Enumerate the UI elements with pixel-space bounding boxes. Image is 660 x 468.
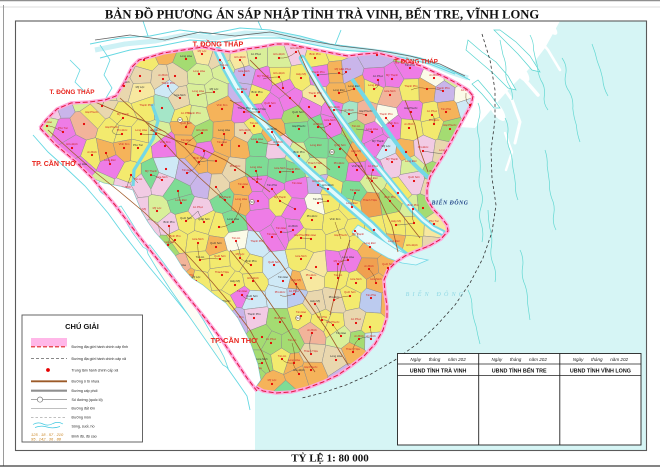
svg-text:Thạnh Phú: Thạnh Phú [250,239,264,243]
svg-text:An Bình: An Bình [158,73,168,77]
svg-text:Vinh Kim: Vinh Kim [119,142,130,146]
svg-text:Đường đất lớn: Đường đất lớn [72,407,96,411]
svg-text:An Phục: An Phục [193,205,204,209]
svg-text:Hữu Định: Hữu Định [66,142,78,146]
svg-text:Hòa Ninh: Hòa Ninh [192,237,204,241]
svg-text:Long Đức: Long Đức [388,239,400,243]
svg-text:An Bình: An Bình [344,108,354,112]
svg-text:Phú Đức: Phú Đức [151,128,162,132]
svg-text:Tân An: Tân An [334,273,343,277]
svg-text:Mỹ Thạnh: Mỹ Thạnh [145,169,157,173]
svg-text:95 . 142 . 36 . 88: 95 . 142 . 36 . 88 [31,437,62,442]
svg-text:Quới Sơn: Quới Sơn [210,241,222,245]
svg-text:Long Hòa: Long Hòa [227,217,239,221]
svg-text:Mỹ Thạnh: Mỹ Thạnh [257,74,269,78]
svg-text:Bình Phú: Bình Phú [251,90,263,94]
svg-text:Mỹ Lộc: Mỹ Lộc [236,252,245,256]
svg-text:Hòa Ninh: Hòa Ninh [370,277,382,281]
svg-text:Long Hòa: Long Hòa [251,137,263,141]
svg-text:Long Đức: Long Đức [348,84,360,88]
svg-text:Quới Sơn: Quới Sơn [214,254,226,258]
svg-text:Thành Triệu: Thành Triệu [215,270,230,274]
svg-text:An Phục: An Phục [266,337,277,341]
svg-text:Đường cấp phối: Đường cấp phối [72,389,98,393]
svg-text:Long Hòa: Long Hòa [366,127,378,131]
svg-text:Mỹ Thạnh: Mỹ Thạnh [117,112,129,116]
svg-text:Thành Triệu: Thành Triệu [346,347,361,351]
svg-text:An Bình: An Bình [307,328,317,332]
svg-text:Thạnh Phú: Thạnh Phú [308,91,322,95]
svg-text:Hiệp Mỹ: Hiệp Mỹ [310,299,321,303]
svg-text:An Bình: An Bình [267,127,277,131]
svg-text:Mỹ Lộc: Mỹ Lộc [334,259,343,263]
svg-text:An Phục: An Phục [289,289,300,293]
svg-text:Long Đức: Long Đức [104,158,116,162]
svg-text:Hữu Định: Hữu Định [273,71,285,75]
svg-text:Mỹ Thạnh: Mỹ Thạnh [352,232,364,236]
svg-text:An Phục: An Phục [373,74,384,78]
svg-text:Đại Phước: Đại Phước [405,106,419,110]
svg-text:Thạnh Phú: Thạnh Phú [286,167,300,171]
svg-text:Vinh Kim: Vinh Kim [330,217,341,221]
svg-text:Thạnh Phú: Thạnh Phú [379,112,393,116]
svg-text:Thạnh Phú: Thạnh Phú [247,312,261,316]
svg-text:An Phục: An Phục [351,317,362,321]
svg-text:Vinh Kim: Vinh Kim [217,103,228,107]
svg-text:Tân Phú: Tân Phú [441,107,452,111]
svg-text:An Bình: An Bình [354,334,364,338]
svg-text:Quới Sơn: Quới Sơn [246,294,258,298]
svg-text:Quới Sơn: Quới Sơn [334,143,346,147]
svg-text:An Phục: An Phục [341,67,352,71]
svg-text:Tân Phú: Tân Phú [313,197,324,201]
svg-text:An Bình: An Bình [288,224,298,228]
svg-text:Đại Phước: Đại Phước [360,109,374,113]
svg-text:Bình Phú: Bình Phú [245,259,257,263]
svg-text:Hiệp Mỹ: Hiệp Mỹ [391,219,402,223]
svg-text:Tân An: Tân An [220,63,229,67]
svg-text:Sông, suối, hồ: Sông, suối, hồ [72,425,95,429]
svg-text:An Bình: An Bình [273,140,283,144]
svg-text:Tân An: Tân An [196,255,205,259]
svg-text:Bình Phú: Bình Phú [274,316,286,320]
svg-text:Tân An: Tân An [250,121,259,125]
svg-text:Hữu Định: Hữu Định [196,128,208,132]
svg-text:Hòa Ninh: Hòa Ninh [256,357,268,361]
svg-text:Hòa Ninh: Hòa Ninh [174,93,186,97]
svg-text:Long Đức: Long Đức [364,241,376,245]
svg-text:Thạnh Phú: Thạnh Phú [311,70,325,74]
svg-text:Đường địa giới hành chính cấp: Đường địa giới hành chính cấp tỉnh [72,345,128,349]
svg-text:Thành Triệu: Thành Triệu [304,349,319,353]
svg-text:Mỹ Thạnh: Mỹ Thạnh [386,73,398,77]
svg-text:Hữu Định: Hữu Định [247,276,259,280]
svg-text:Đại Phước: Đại Phước [86,110,100,114]
svg-text:Mỹ Thạnh: Mỹ Thạnh [386,157,398,161]
svg-text:Phú Túc: Phú Túc [133,143,144,147]
svg-text:Phú Đức: Phú Đức [307,214,318,218]
svg-text:Long Đức: Long Đức [366,176,378,180]
svg-text:T. ĐỒNG THÁP: T. ĐỒNG THÁP [394,59,438,66]
svg-text:Long Đức: Long Đức [405,159,417,163]
svg-text:An Phục: An Phục [427,109,438,113]
svg-text:Mỹ Lộc: Mỹ Lộc [192,275,201,279]
svg-text:Tân Phú: Tân Phú [317,315,328,319]
svg-text:Tân Hào: Tân Hào [292,181,303,185]
svg-text:Hòa Ninh: Hòa Ninh [350,277,362,281]
svg-text:Mỹ Thạnh: Mỹ Thạnh [274,195,286,199]
svg-text:Tân Hào: Tân Hào [238,182,249,186]
svg-text:Tân Phú: Tân Phú [267,183,278,187]
svg-text:Vinh Kim: Vinh Kim [352,164,363,168]
svg-text:UBND TỈNH BẾN TRE: UBND TỈNH BẾN TRE [492,367,547,374]
svg-text:Hòa Ninh: Hòa Ninh [295,254,307,258]
svg-text:Thạnh Phú: Thạnh Phú [187,111,201,115]
svg-text:Phú Đức: Phú Đức [275,290,286,294]
svg-text:Hiệp Mỹ: Hiệp Mỹ [291,278,302,282]
svg-text:Long Đức: Long Đức [346,201,358,205]
svg-text:Bình Phú: Bình Phú [407,203,419,207]
svg-text:Tân An: Tân An [352,124,361,128]
svg-text:Bình độ, độ cao: Bình độ, độ cao [72,435,97,439]
svg-text:Phú Túc: Phú Túc [58,126,69,130]
svg-text:Long Hòa: Long Hòa [330,354,342,358]
svg-text:Hiệp Mỹ: Hiệp Mỹ [351,149,362,153]
svg-text:An Phục: An Phục [251,52,262,56]
svg-text:Phú Túc: Phú Túc [429,219,440,223]
svg-text:Phú Đức: Phú Đức [306,273,317,277]
svg-text:Hữu Định: Hữu Định [328,105,340,109]
svg-text:Long Hòa: Long Hòa [250,165,262,169]
svg-text:Thạnh Phú: Thạnh Phú [237,106,251,110]
svg-text:Long Đức: Long Đức [310,143,322,147]
svg-text:Bình Phú: Bình Phú [293,150,305,154]
svg-text:Phú Đức: Phú Đức [230,164,241,168]
svg-text:An Bình: An Bình [87,150,97,154]
svg-text:Hữu Định: Hữu Định [273,52,285,56]
svg-text:Long Đức: Long Đức [333,88,345,92]
svg-text:An Bình: An Bình [313,122,323,126]
svg-text:Mỹ Lộc: Mỹ Lộc [198,49,207,53]
svg-text:Thành Triệu: Thành Triệu [363,198,378,202]
svg-text:Đường mòn: Đường mòn [72,416,91,420]
svg-text:Phú Đức: Phú Đức [418,145,429,149]
svg-text:Mỹ Lộc: Mỹ Lộc [136,85,145,89]
svg-text:UBND TỈNH TRÀ VINH: UBND TỈNH TRÀ VINH [410,367,467,374]
svg-text:An Phục: An Phục [368,164,379,168]
svg-text:Tân Hào: Tân Hào [276,226,287,230]
svg-text:BIỂN ĐÔNG: BIỂN ĐÔNG [406,290,467,298]
svg-text:Tân Hào: Tân Hào [182,168,193,172]
svg-text:Đại Phước: Đại Phước [293,124,307,128]
svg-text:Phú Đức: Phú Đức [334,161,345,165]
svg-text:Tân An: Tân An [278,354,287,358]
svg-text:Hiệp Mỹ: Hiệp Mỹ [296,72,307,76]
svg-text:Tân Phú: Tân Phú [366,293,377,297]
svg-text:Hòa Ninh: Hòa Ninh [384,89,396,93]
svg-text:Mỹ Lộc: Mỹ Lộc [210,87,219,91]
svg-text:Hữu Định: Hữu Định [234,55,246,59]
svg-text:Tân An: Tân An [232,236,241,240]
svg-text:60: 60 [330,150,334,154]
svg-text:TP. CẦN THƠ: TP. CẦN THƠ [211,335,259,345]
svg-text:Phú Đức: Phú Đức [117,128,128,132]
svg-text:53: 53 [250,200,254,204]
svg-text:Long Hòa: Long Hòa [180,54,192,58]
svg-text:Số đường (quốc lộ): Số đường (quốc lộ) [72,398,103,402]
svg-text:Ngày tháng năm 202: Ngày tháng năm 202 [410,357,466,362]
svg-text:Long Hòa: Long Hòa [218,128,230,132]
svg-text:CHÚ GIẢI: CHÚ GIẢI [65,322,99,331]
svg-text:Hữu Định: Hữu Định [239,128,251,132]
svg-text:Thành Triệu: Thành Triệu [308,161,323,165]
svg-text:Hòa Ninh: Hòa Ninh [238,69,250,73]
svg-text:Hiệp Mỹ: Hiệp Mỹ [230,279,241,283]
svg-text:Tân Hào: Tân Hào [306,233,317,237]
svg-text:Thạnh Phú: Thạnh Phú [404,84,418,88]
svg-text:Vinh Kim: Vinh Kim [160,140,171,144]
svg-text:An Bình: An Bình [366,334,376,338]
svg-text:Quới Sơn: Quới Sơn [408,175,420,179]
svg-text:Tân An: Tân An [134,177,143,181]
svg-text:Bình Phú: Bình Phú [193,156,205,160]
svg-text:Đại Phước: Đại Phước [327,320,341,324]
svg-text:Quới Sơn: Quới Sơn [268,260,280,264]
svg-text:Long Hòa: Long Hòa [135,128,147,132]
svg-text:An Phục: An Phục [252,177,263,181]
svg-text:Long Hòa: Long Hòa [193,69,205,73]
svg-text:Thạnh Phú: Thạnh Phú [139,103,153,107]
svg-text:Hòa Ninh: Hòa Ninh [156,175,168,179]
svg-text:Tân Hào: Tân Hào [237,289,248,293]
svg-text:Quới Sơn: Quới Sơn [344,290,356,294]
svg-text:An Bình: An Bình [404,122,414,126]
svg-text:Mỹ Lộc: Mỹ Lộc [268,378,277,382]
svg-text:Tân Hào: Tân Hào [267,232,278,236]
svg-text:Phú Đức: Phú Đức [429,118,440,122]
svg-text:Long Đức: Long Đức [368,83,380,87]
svg-text:Bình Phú: Bình Phú [384,195,396,199]
svg-text:Bình Phú: Bình Phú [309,52,321,56]
svg-text:Tân Hào: Tân Hào [217,140,228,144]
svg-text:Mỹ Thạnh: Mỹ Thạnh [372,139,384,143]
svg-text:Hòa Ninh: Hòa Ninh [324,118,336,122]
svg-text:T. ĐỒNG THÁP: T. ĐỒNG THÁP [193,39,244,49]
svg-text:Đại Phước: Đại Phước [444,123,458,127]
svg-text:Ngày tháng năm 202: Ngày tháng năm 202 [491,357,547,362]
svg-text:Quới Sơn: Quới Sơn [292,110,304,114]
svg-text:Hữu Định: Hữu Định [293,368,305,372]
svg-text:Long Hòa: Long Hòa [288,358,300,362]
svg-text:Tân Hào: Tân Hào [336,331,347,335]
svg-text:TỶ LỆ 1: 80 000: TỶ LỆ 1: 80 000 [291,452,369,465]
svg-text:Ngày tháng năm 202: Ngày tháng năm 202 [573,357,629,362]
svg-text:Bình Phú: Bình Phú [163,220,175,224]
svg-text:Hữu Định: Hữu Định [322,183,334,187]
svg-text:Trung tâm hành chính cấp xã: Trung tâm hành chính cấp xã [72,369,119,373]
svg-text:Bình Phú: Bình Phú [169,234,181,238]
svg-text:Hữu Định: Hữu Định [406,243,418,247]
svg-text:BẢN ĐỒ PHƯƠNG ÁN SÁP NHẬP TỈNH: BẢN ĐỒ PHƯƠNG ÁN SÁP NHẬP TỈNH TRÀ VINH,… [105,7,540,22]
svg-text:Hòa Ninh: Hòa Ninh [274,166,286,170]
svg-text:Thành Triệu: Thành Triệu [252,107,267,111]
svg-text:Quới Sơn: Quới Sơn [382,262,394,266]
svg-text:BIỂN ĐÔNG: BIỂN ĐÔNG [431,199,469,207]
svg-text:Đại Phước: Đại Phước [335,233,349,237]
svg-text:Mỹ Thạnh: Mỹ Thạnh [219,195,231,199]
svg-text:Tân Hào: Tân Hào [296,310,307,314]
svg-text:Phú Đức: Phú Đức [329,295,340,299]
svg-text:Quới Sơn: Quới Sơn [180,216,192,220]
svg-text:UBND TỈNH VĨNH LONG: UBND TỈNH VĨNH LONG [570,367,631,374]
svg-text:Vinh Kim: Vinh Kim [388,121,399,125]
svg-text:54: 54 [296,316,300,320]
svg-text:Quới Sơn: Quới Sơn [180,121,192,125]
svg-text:Tân Hào: Tân Hào [181,138,192,142]
svg-text:Mỹ Lộc: Mỹ Lộc [153,206,162,210]
svg-text:Tân Hào: Tân Hào [278,275,289,279]
svg-text:Thạnh Phú: Thạnh Phú [161,81,175,85]
svg-text:Long Hòa: Long Hòa [342,255,354,259]
svg-text:Hữu Định: Hữu Định [312,179,324,183]
svg-text:Long Đức: Long Đức [175,198,187,202]
svg-text:An Bình: An Bình [364,264,374,268]
svg-text:Tân Hào: Tân Hào [350,188,361,192]
svg-text:Đường địa giới hành chính cấp: Đường địa giới hành chính cấp xã [72,357,126,361]
svg-text:Mỹ Lộc: Mỹ Lộc [382,144,391,148]
svg-text:Quới Sơn: Quới Sơn [198,217,210,221]
svg-text:Đường ô tô nhựa: Đường ô tô nhựa [72,380,100,384]
svg-text:An Phục: An Phục [237,87,248,91]
svg-text:Tân An: Tân An [288,338,297,342]
svg-text:Long Hòa: Long Hòa [235,197,247,201]
svg-text:Long Hòa: Long Hòa [192,89,204,93]
svg-text:Quới Sơn: Quới Sơn [264,101,276,105]
svg-text:Đại Phước: Đại Phước [305,365,319,369]
svg-text:Thạnh Phú: Thạnh Phú [436,86,450,90]
